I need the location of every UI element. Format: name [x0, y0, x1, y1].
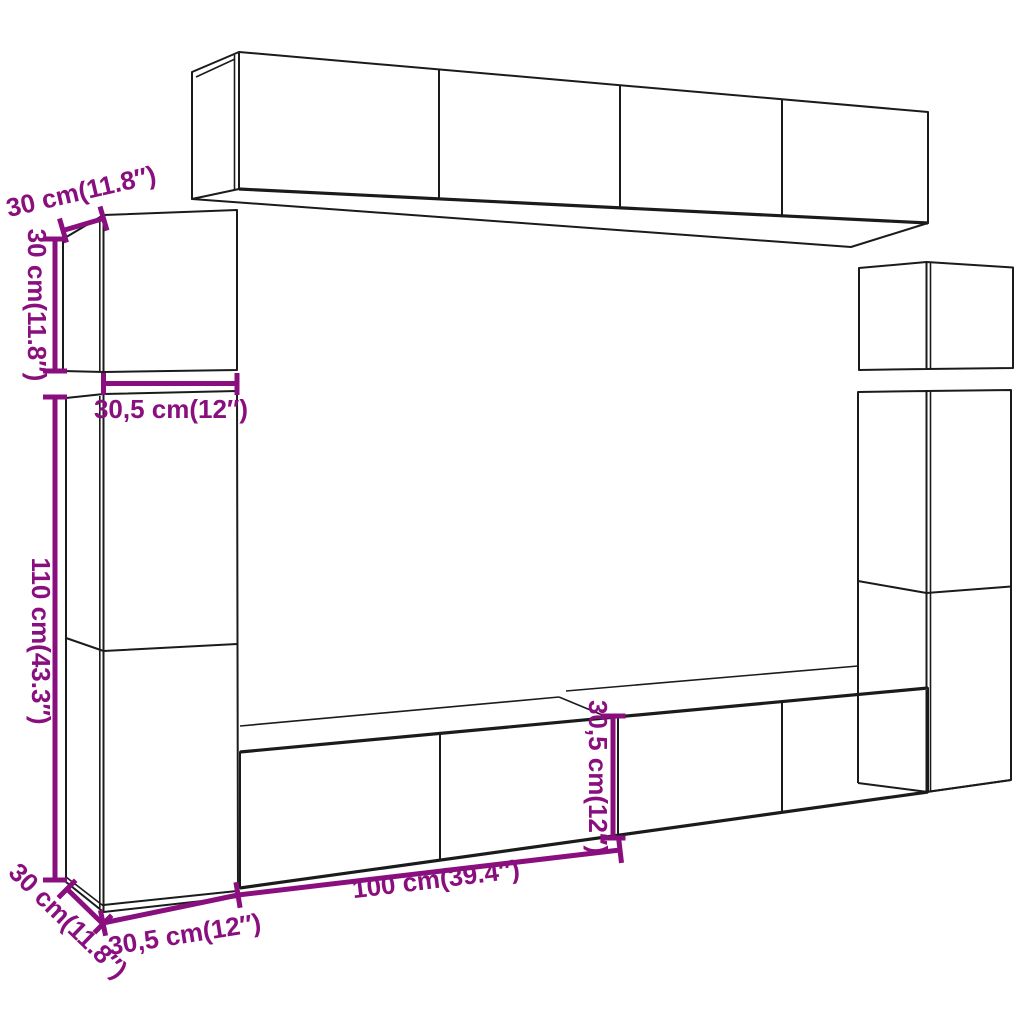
diagram-canvas: 30 cm(11.8″) 30 cm(11.8″) 30,5 cm(12″) 1… [0, 0, 1024, 1024]
dimension-tall-cabinet-height: 110 cm(43.3″) [26, 397, 67, 880]
top-back-edge-right [566, 666, 858, 691]
wall-cabinet-top [192, 52, 928, 247]
cabinet-side-face [192, 52, 239, 199]
wall-cabinet-small-left [63, 210, 237, 372]
dimension-label: 30,5 cm(12″) [583, 700, 613, 854]
cabinet-side-face [63, 215, 104, 372]
dimension-small-cabinet-height: 30 cm(11.8″) [22, 229, 67, 382]
dimension-label: 110 cm(43.3″) [26, 557, 56, 724]
dimension-label: 30 cm(11.8″) [22, 229, 52, 382]
cabinet-side-face [927, 390, 1012, 792]
dimension-small-cabinet-width: 30,5 cm(12″) [94, 373, 248, 424]
dimension-label: 30,5 cm(12″) [94, 394, 248, 424]
cabinet-side-face [927, 262, 1014, 369]
tall-cabinet-left [66, 391, 238, 912]
cabinet-front-face [859, 262, 927, 370]
wall-cabinet-small-right [859, 262, 1013, 370]
cabinet-front-face [104, 391, 239, 912]
top-back-edge-left [240, 697, 559, 726]
cabinet-front-face [104, 210, 238, 372]
dimension-tick [619, 837, 622, 863]
product-dimension-diagram: 30 cm(11.8″) 30 cm(11.8″) 30,5 cm(12″) 1… [0, 0, 1024, 1024]
cabinet-side-face [66, 394, 104, 912]
